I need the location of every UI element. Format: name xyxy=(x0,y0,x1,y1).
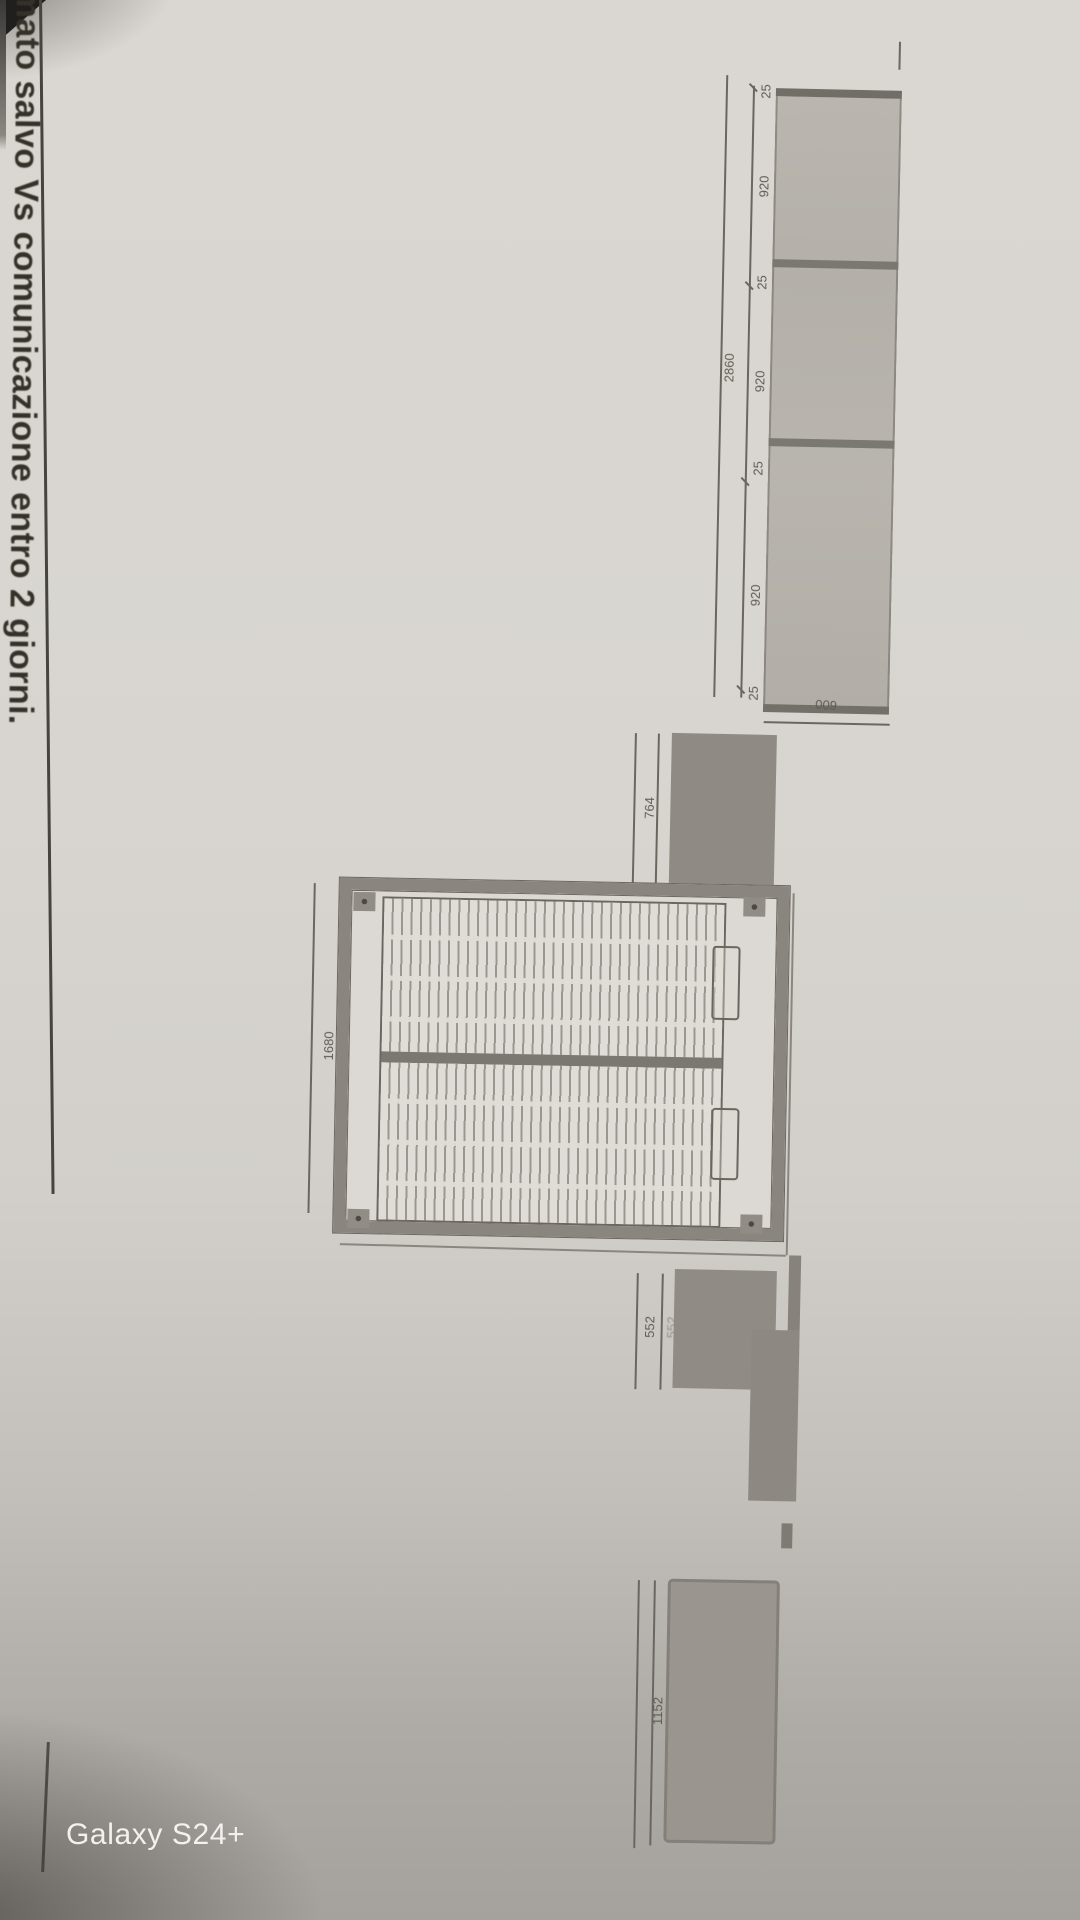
shelf-drawing: 1152 xyxy=(625,1575,830,1868)
corner-bracket xyxy=(743,897,765,916)
dimension-line xyxy=(632,733,637,883)
mattress-lower xyxy=(378,1062,721,1225)
lower-element-dim-label: 552 xyxy=(642,1305,658,1349)
bed-frame-drawing: 1680 xyxy=(302,872,810,1282)
shelf-body xyxy=(663,1579,780,1845)
camera-watermark: Galaxy S24+ xyxy=(66,1818,245,1852)
mattress-handle-upper xyxy=(711,946,740,1021)
panel-stack xyxy=(763,88,902,715)
dimension-line xyxy=(659,1274,663,1390)
dimension-line xyxy=(633,1580,639,1848)
side-element-dim-label: 764 xyxy=(641,786,657,830)
step-block xyxy=(748,1330,800,1502)
connector-strip xyxy=(788,1255,802,1330)
chain-dim-label: 920 xyxy=(756,166,772,206)
side-element-552-drawing: 552 xyxy=(623,1265,830,1589)
note-underline xyxy=(39,0,54,1194)
chain-dim-label: 25 xyxy=(758,71,774,111)
bed-length-dim-label: 1680 xyxy=(321,1018,337,1074)
panels-total-dim-label: 2860 xyxy=(721,338,737,398)
chain-dim-label: 920 xyxy=(747,575,763,615)
panel-divider xyxy=(772,259,898,270)
chain-dim-label: 920 xyxy=(752,361,768,401)
panel-column-drawing: 2860 25 920 25 920 25 920 25 600 xyxy=(705,40,920,744)
chain-dim-label: 25 xyxy=(750,448,766,488)
length-dimension-line xyxy=(307,883,315,1213)
side-element-764-drawing: 764 xyxy=(627,730,790,893)
side-element-body xyxy=(669,733,777,885)
paper-edge-crease xyxy=(41,1742,50,1872)
mattress-upper xyxy=(382,898,725,1057)
corner-bracket xyxy=(353,892,375,911)
slat-area xyxy=(376,896,726,1228)
small-block xyxy=(781,1523,793,1548)
dimension-line xyxy=(634,1273,638,1389)
corner-bracket xyxy=(347,1209,369,1228)
photographed-drawing-sheet: mato salvo Vs comunicazione entro 2 gior… xyxy=(0,0,1080,1920)
width-dimension-line xyxy=(764,721,890,725)
chain-dim-label: 25 xyxy=(754,262,770,302)
chain-dim-label: 25 xyxy=(745,673,761,713)
corner-bracket xyxy=(740,1214,762,1233)
stray-extension-line xyxy=(898,42,900,70)
paper-left-edge xyxy=(0,0,6,150)
outer-contour-line xyxy=(340,1243,786,1257)
panel-divider xyxy=(769,438,895,449)
mattress-handle-lower xyxy=(710,1108,739,1181)
shelf-dim-label: 1152 xyxy=(650,1683,666,1739)
